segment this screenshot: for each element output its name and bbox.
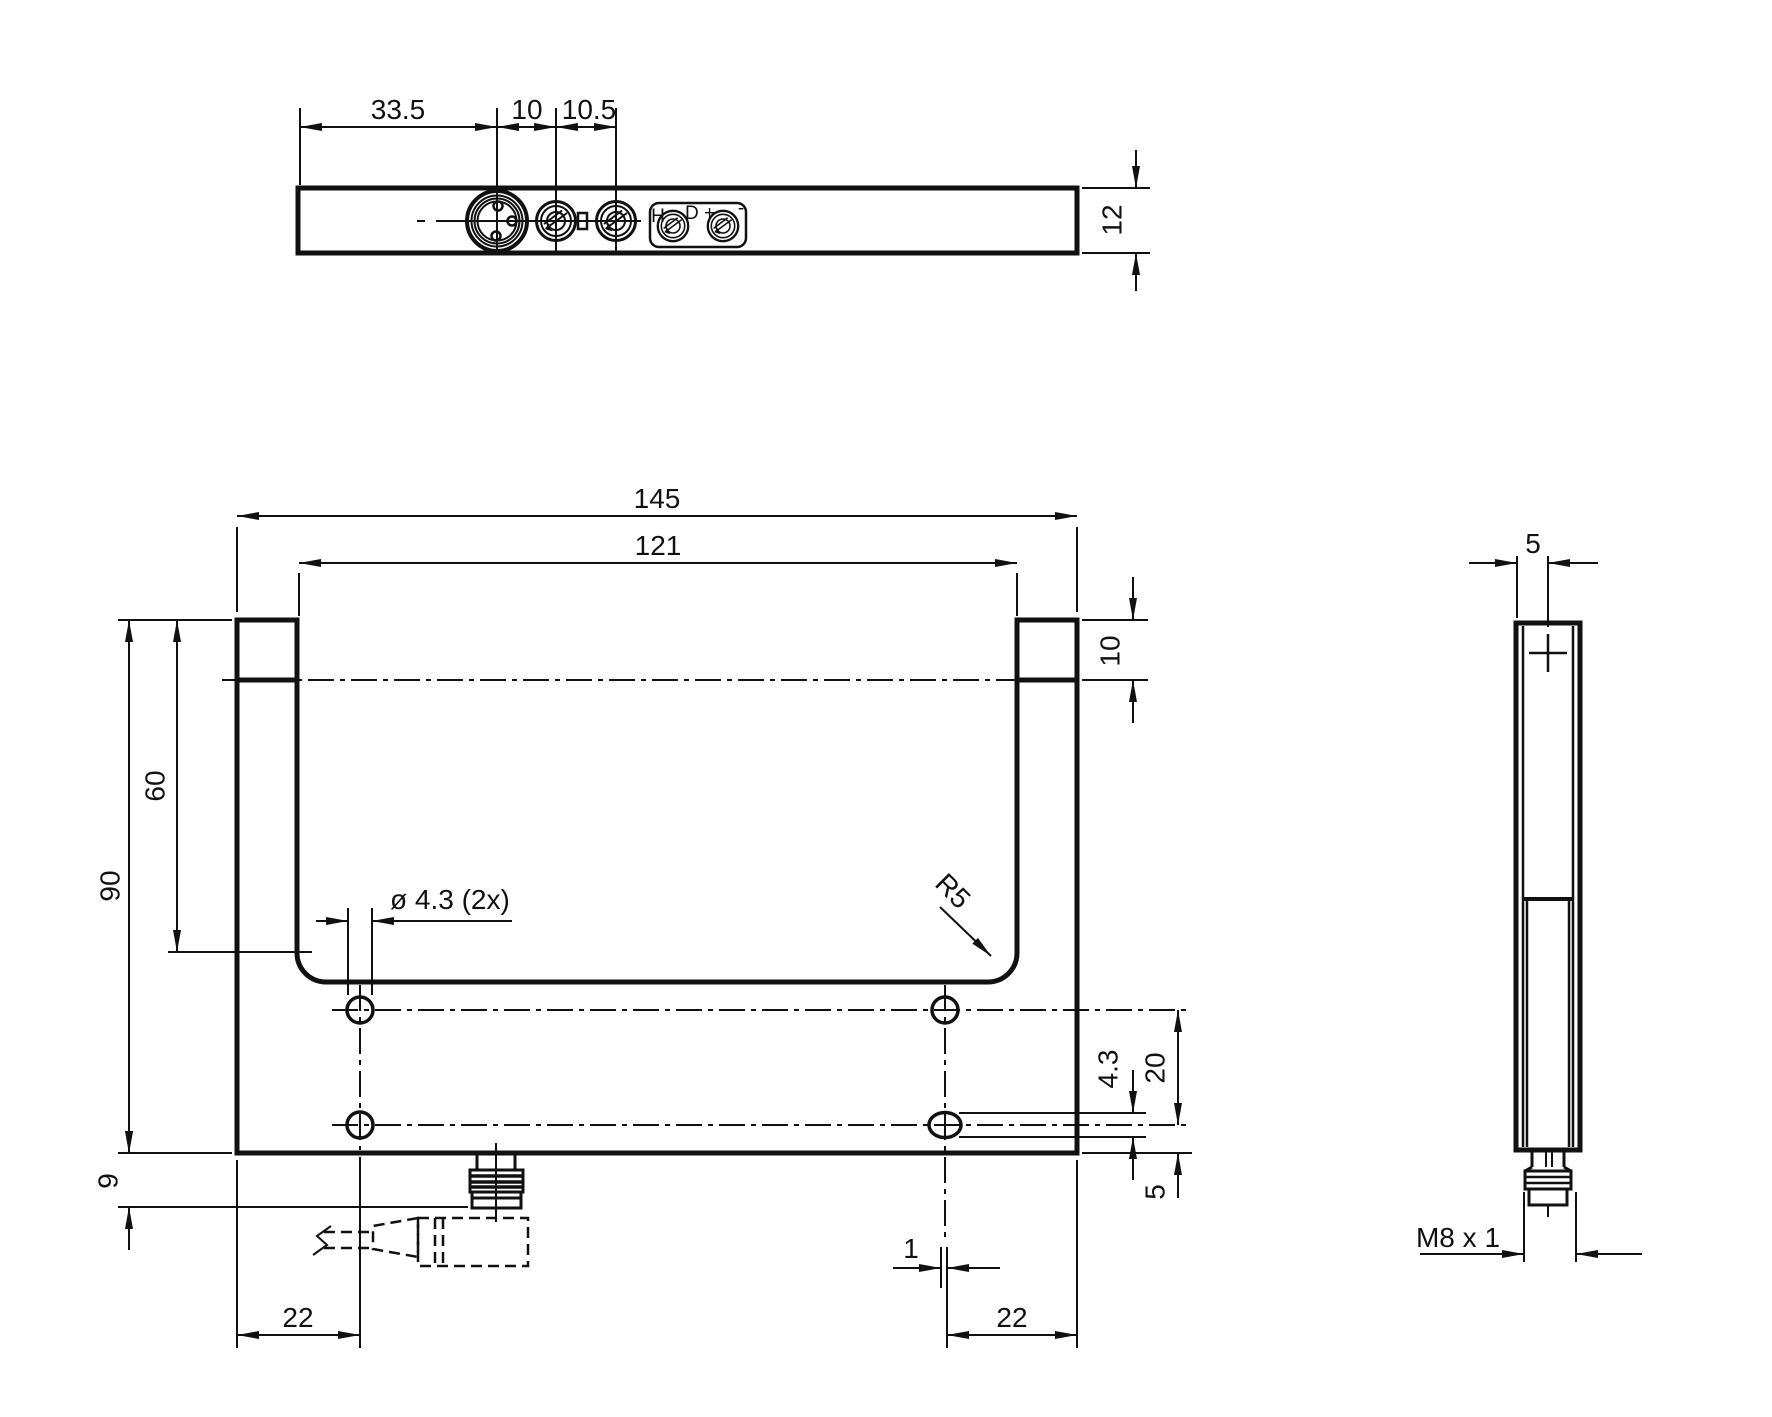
- dim-label-m8: M8 x 1: [1416, 1222, 1500, 1253]
- dimension-22-left: 22: [237, 1302, 360, 1335]
- dim-label-5-side: 5: [1525, 528, 1541, 559]
- dim-label-22-right: 22: [996, 1302, 1027, 1333]
- fork-sensor-dimension-drawing: H D + - 33.5 10 10.5 12: [0, 0, 1772, 1417]
- dimension-r5: R5: [929, 867, 991, 956]
- panel-label-minus: -: [738, 198, 744, 219]
- front-view: 145 121 90 60 9: [93, 483, 1193, 1348]
- dim-label-4-3: 4.3: [1093, 1050, 1124, 1089]
- dim-label-10-front: 10: [1095, 635, 1126, 666]
- dimension-hole-diameter: ø 4.3 (2x): [316, 884, 512, 995]
- dim-label-10-top: 10: [511, 94, 542, 125]
- dim-label-hole-diameter: ø 4.3 (2x): [390, 884, 510, 915]
- side-view: 5 M8 x 1: [1416, 528, 1642, 1262]
- dim-label-r5: R5: [929, 867, 976, 914]
- dimension-4-3: 4.3: [1093, 1050, 1134, 1180]
- dimension-5-front: 5: [1082, 1153, 1192, 1200]
- dim-label-9: 9: [93, 1173, 124, 1189]
- housing-outline-side: [1516, 623, 1580, 1150]
- dim-label-33-5: 33.5: [371, 94, 426, 125]
- lens-panel: [1522, 899, 1574, 1147]
- dim-label-60: 60: [140, 770, 171, 801]
- dim-label-22-left: 22: [282, 1302, 313, 1333]
- dimension-12: 12: [1082, 150, 1150, 291]
- panel-label-d-plus: D +: [685, 203, 715, 224]
- dim-label-145: 145: [634, 483, 681, 514]
- dimension-5-side: 5: [1469, 528, 1598, 627]
- dimension-20: 20: [1140, 1010, 1179, 1125]
- cable-plug-phantom: [313, 1218, 528, 1266]
- dimension-10-5: 10.5: [556, 94, 616, 127]
- dimension-60: 60: [140, 620, 313, 952]
- dimension-121: 121: [299, 530, 1017, 616]
- top-view: H D + - 33.5 10 10.5 12: [298, 94, 1150, 291]
- dim-label-121: 121: [635, 530, 682, 561]
- technical-drawing-page: H D + - 33.5 10 10.5 12: [0, 0, 1772, 1417]
- dimension-10-front: 10: [1082, 577, 1148, 723]
- optical-axis-cross-icon: [1529, 634, 1567, 672]
- dimension-9: 9: [93, 1110, 469, 1250]
- dim-label-10-5: 10.5: [562, 94, 617, 125]
- dim-label-12: 12: [1097, 204, 1128, 235]
- dimension-33-5: 33.5: [300, 94, 497, 127]
- dimension-1: 1: [893, 1233, 1000, 1348]
- cable-break-mark: [313, 1226, 331, 1255]
- panel-label-h: H: [651, 206, 665, 227]
- dimension-22-right: 22: [947, 1302, 1077, 1335]
- adjustment-panel: H D + -: [650, 198, 746, 247]
- dim-label-1: 1: [903, 1233, 919, 1264]
- dim-label-20: 20: [1140, 1052, 1171, 1083]
- dim-label-5-front: 5: [1140, 1184, 1171, 1200]
- dimension-10-top: 10: [497, 94, 556, 127]
- dimension-90: 90: [95, 620, 233, 1153]
- dim-label-90: 90: [95, 870, 126, 901]
- m8-connector-side: [1525, 1150, 1571, 1217]
